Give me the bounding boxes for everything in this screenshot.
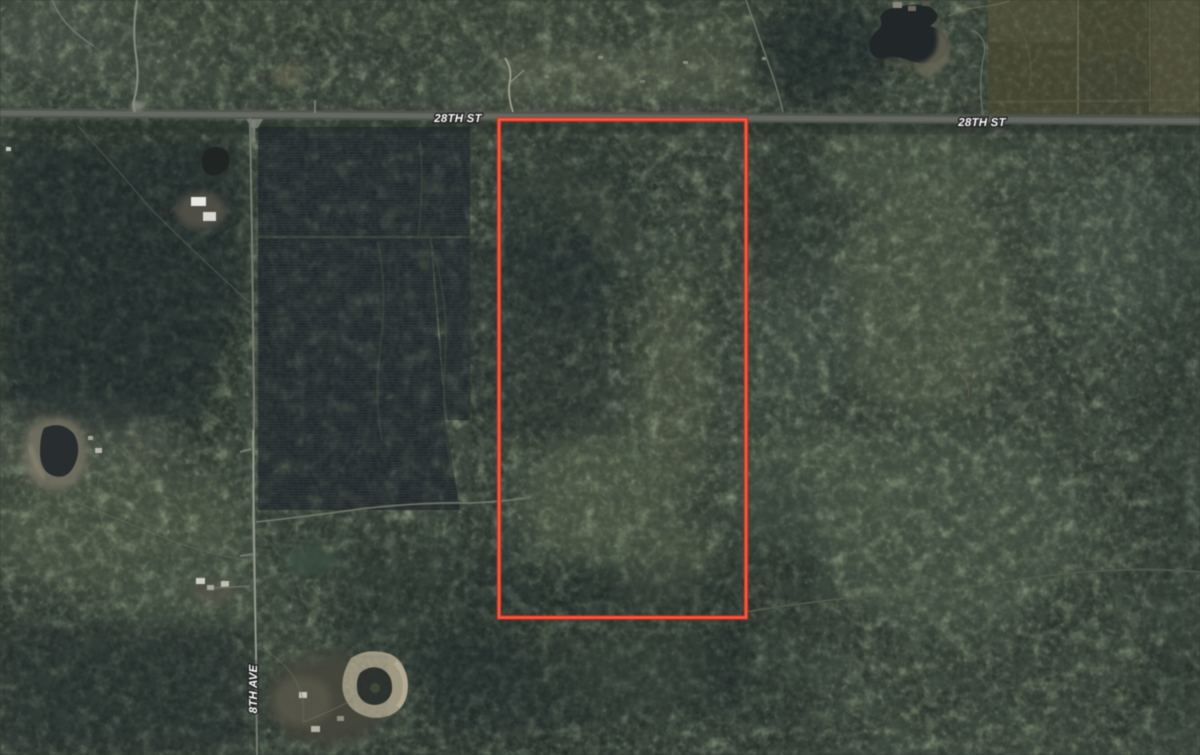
svg-text:28TH ST: 28TH ST bbox=[433, 113, 482, 125]
svg-text:28TH ST: 28TH ST bbox=[957, 117, 1006, 129]
svg-text:8TH AVE: 8TH AVE bbox=[248, 665, 260, 714]
